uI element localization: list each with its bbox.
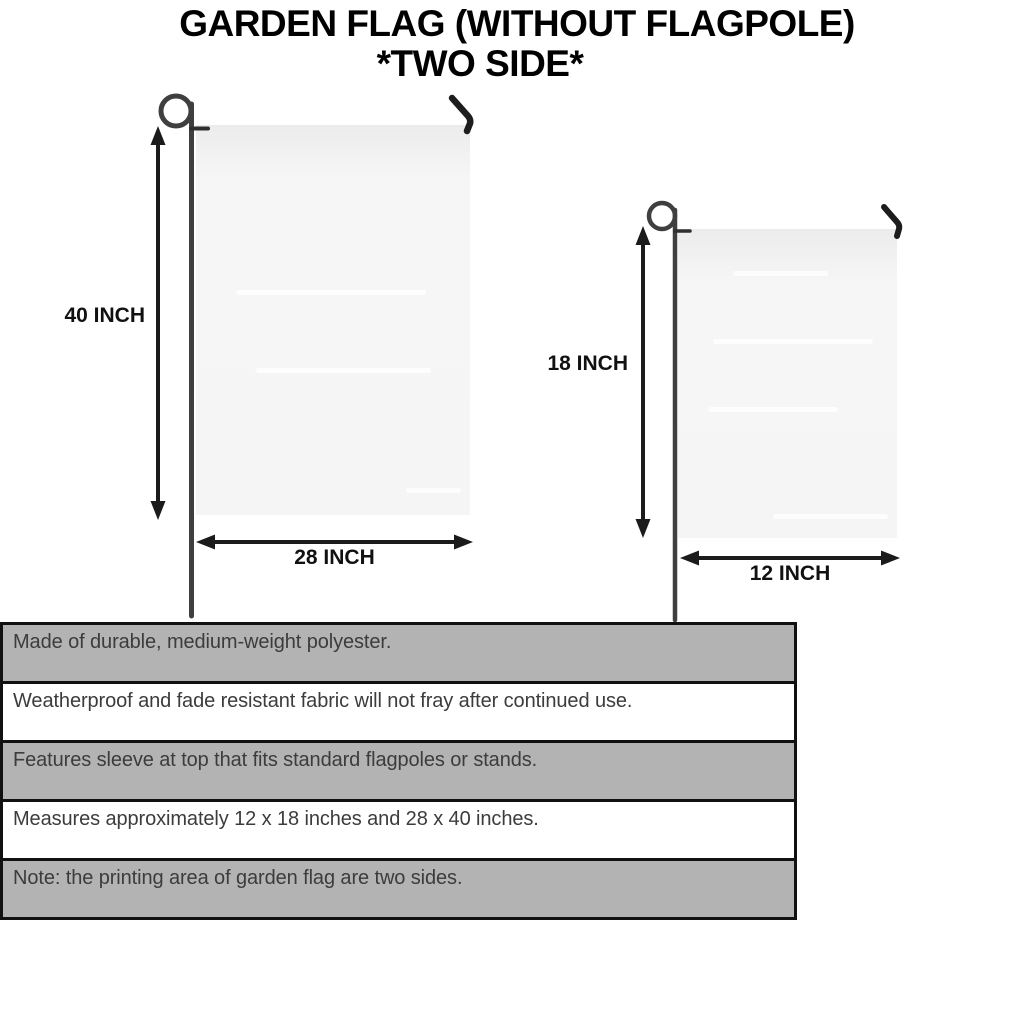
fabric-wrinkle-highlight <box>733 271 828 276</box>
fabric-wrinkle-highlight <box>773 514 888 519</box>
feature-row: Features sleeve at top that fits standar… <box>3 740 794 799</box>
features-table: Made of durable, medium-weight polyester… <box>0 622 797 920</box>
page-title-line2: *TWO SIDE* <box>0 44 992 84</box>
page-title-line1: GARDEN FLAG (WITHOUT FLAGPOLE) <box>5 4 1024 44</box>
large-height-arrow <box>151 126 166 520</box>
product-info-image: GARDEN FLAG (WITHOUT FLAGPOLE) *TWO SIDE… <box>0 0 1024 1024</box>
large-flag-image <box>196 125 470 515</box>
fabric-wrinkle-highlight <box>256 368 431 373</box>
fabric-wrinkle-highlight <box>236 290 426 295</box>
feature-text: Measures approximately 12 x 18 inches an… <box>13 808 539 830</box>
small-width-label: 12 INCH <box>680 562 900 586</box>
feature-row: Measures approximately 12 x 18 inches an… <box>3 799 794 858</box>
small-height-label: 18 INCH <box>515 352 628 376</box>
feature-text: Made of durable, medium-weight polyester… <box>13 631 391 653</box>
page-title: GARDEN FLAG (WITHOUT FLAGPOLE) *TWO SIDE… <box>0 4 1024 84</box>
feature-text: Note: the printing area of garden flag a… <box>13 867 462 889</box>
fabric-wrinkle-highlight <box>708 407 838 412</box>
large-width-label: 28 INCH <box>196 546 473 570</box>
fabric-wrinkle-highlight <box>406 488 461 493</box>
small-height-arrow <box>636 226 651 538</box>
large-height-label: 40 INCH <box>30 304 145 328</box>
feature-row: Note: the printing area of garden flag a… <box>3 858 794 917</box>
fabric-wrinkle-highlight <box>713 339 873 344</box>
feature-text: Features sleeve at top that fits standar… <box>13 749 537 771</box>
small-flag-image <box>678 229 897 538</box>
feature-text: Weatherproof and fade resistant fabric w… <box>13 690 632 712</box>
feature-row: Weatherproof and fade resistant fabric w… <box>3 681 794 740</box>
feature-row: Made of durable, medium-weight polyester… <box>3 625 794 681</box>
